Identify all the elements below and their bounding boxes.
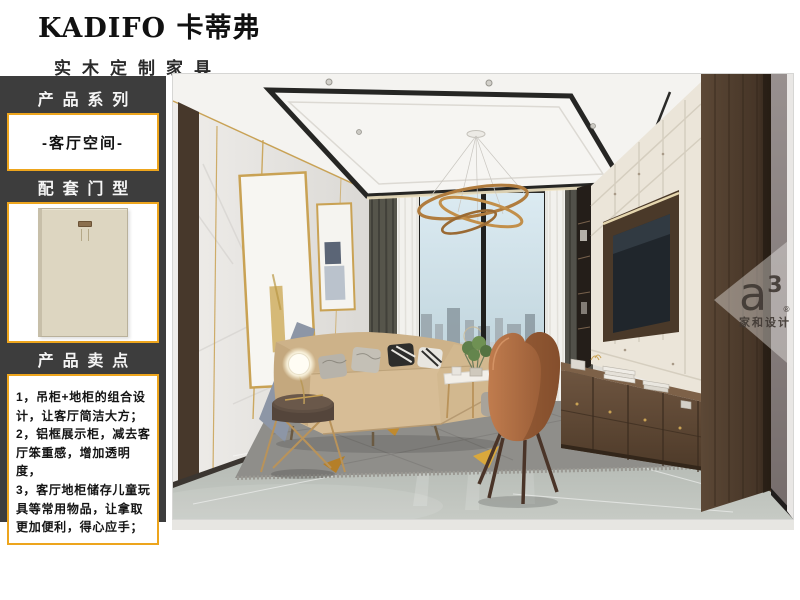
brand-title: KADIFO 卡蒂弗 — [38, 6, 260, 45]
photo-bottom-mat — [172, 520, 794, 530]
door-handle-icon — [78, 221, 92, 227]
product-info-sidebar: 产品系列 -客厅空间- 配套门型 产品卖点 1，吊柜+地柜的组合设计，让客厅简洁… — [0, 76, 166, 522]
catalog-page: KADIFO 卡蒂弗 实木定制家具 产品系列 -客厅空间- 配套门型 产品卖点 … — [0, 0, 800, 600]
selling-point-1: 1，吊柜+地柜的组合设计，让客厅简洁大方； — [16, 388, 151, 425]
selling-points-box: 1，吊柜+地柜的组合设计，让客厅简洁大方； 2，铝框展示柜，减去客厅笨重感，增加… — [7, 374, 159, 545]
selling-point-3: 3，客厅地柜储存儿童玩具等常用物品，让拿取更加便利，得心应手； — [16, 481, 151, 537]
section-label-door: 配套门型 — [7, 171, 159, 202]
series-value-box: -客厅空间- — [7, 113, 159, 171]
section-label-selling: 产品卖点 — [7, 343, 159, 374]
selling-point-2: 2，铝框展示柜，减去客厅笨重感，增加透明度， — [16, 425, 151, 481]
watermark-name: 家和设计 — [739, 315, 791, 329]
door-panel-image — [38, 208, 128, 337]
door-keyhole-icon — [81, 229, 89, 241]
door-image-box — [7, 202, 159, 343]
living-room-photo: a3® 家和设计 — [172, 73, 794, 520]
header: KADIFO 卡蒂弗 实木定制家具 — [38, 6, 260, 79]
wall-art-small — [317, 203, 355, 310]
section-label-series: 产品系列 — [7, 82, 159, 113]
series-value: -客厅空间- — [42, 132, 124, 153]
